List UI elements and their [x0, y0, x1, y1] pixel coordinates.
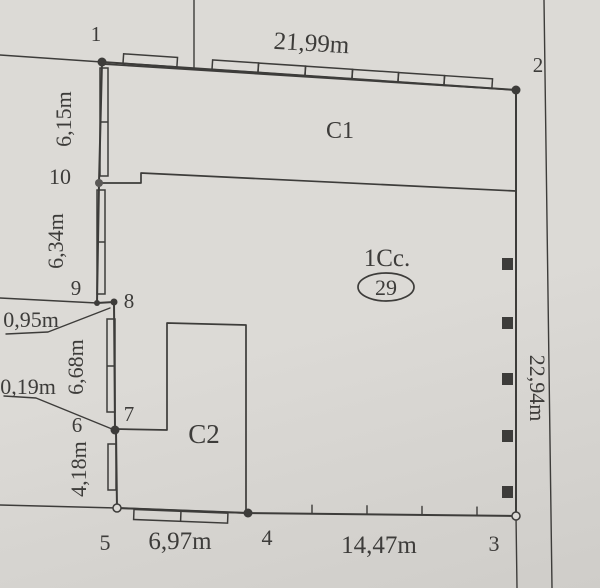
dimension-8-7: 6,68m — [63, 339, 88, 395]
point-9-marker — [94, 300, 100, 306]
parcel-boundary — [97, 62, 516, 516]
neighbor-line-topleft — [0, 55, 102, 62]
point-4-marker — [244, 509, 253, 518]
point-2-marker — [512, 86, 521, 95]
point-1-label: 1 — [91, 22, 102, 46]
building-c1-label: C1 — [326, 118, 354, 144]
dimension-6-5: 4,18m — [66, 441, 91, 497]
point-5-label: 5 — [100, 530, 111, 555]
building-c2-outline — [115, 323, 246, 513]
point-10-label: 10 — [49, 164, 71, 189]
road-edge-line — [544, 0, 552, 588]
boundary-extension-bottomright — [516, 516, 517, 588]
dimension-2-3: 22,94m — [525, 355, 550, 422]
point-6-label: 6 — [72, 413, 83, 437]
dimension-1-2: 21,99m — [273, 28, 351, 60]
dimension-10-9: 6,34m — [43, 213, 68, 269]
scanned-cadastral-plan: 1 21,99m 2 6,15m 10 6,34m 9 8 0,95m 0,19… — [0, 0, 600, 588]
dimension-7-6: 0,19m — [0, 374, 56, 399]
dimension-4-3: 14,47m — [341, 532, 417, 559]
point-8-label: 8 — [124, 289, 135, 313]
building-c2-label: C2 — [188, 419, 220, 449]
point-5-marker — [113, 504, 121, 512]
leader-0-19m — [4, 396, 112, 429]
point-3-label: 3 — [489, 531, 500, 556]
zone-label: 1Cc. — [364, 245, 411, 272]
point-7-label: 7 — [124, 402, 135, 426]
neighbor-line-left — [0, 298, 97, 303]
dimension-9-8: 0,95m — [3, 307, 59, 332]
building-c1-outline — [99, 64, 516, 191]
fence-top — [123, 54, 493, 88]
point-2-label: 2 — [533, 53, 544, 77]
dimension-5-4: 6,97m — [148, 528, 212, 555]
boundary-points — [94, 58, 521, 521]
cadastral-plan-svg: 1 21,99m 2 6,15m 10 6,34m 9 8 0,95m 0,19… — [0, 0, 600, 588]
point-8-marker — [111, 299, 118, 306]
point-4-label: 4 — [262, 525, 273, 550]
point-9-label: 9 — [71, 276, 82, 300]
point-10-marker — [95, 179, 103, 187]
point-3-marker — [512, 512, 520, 520]
dimension-1-10: 6,15m — [51, 91, 76, 147]
point-7-marker — [111, 426, 120, 435]
boundary-marks-right — [502, 258, 513, 498]
parcel-number: 29 — [375, 275, 397, 300]
context-lines — [0, 0, 552, 588]
boundary-extension-bottomleft — [0, 505, 117, 508]
point-1-marker — [98, 58, 107, 67]
